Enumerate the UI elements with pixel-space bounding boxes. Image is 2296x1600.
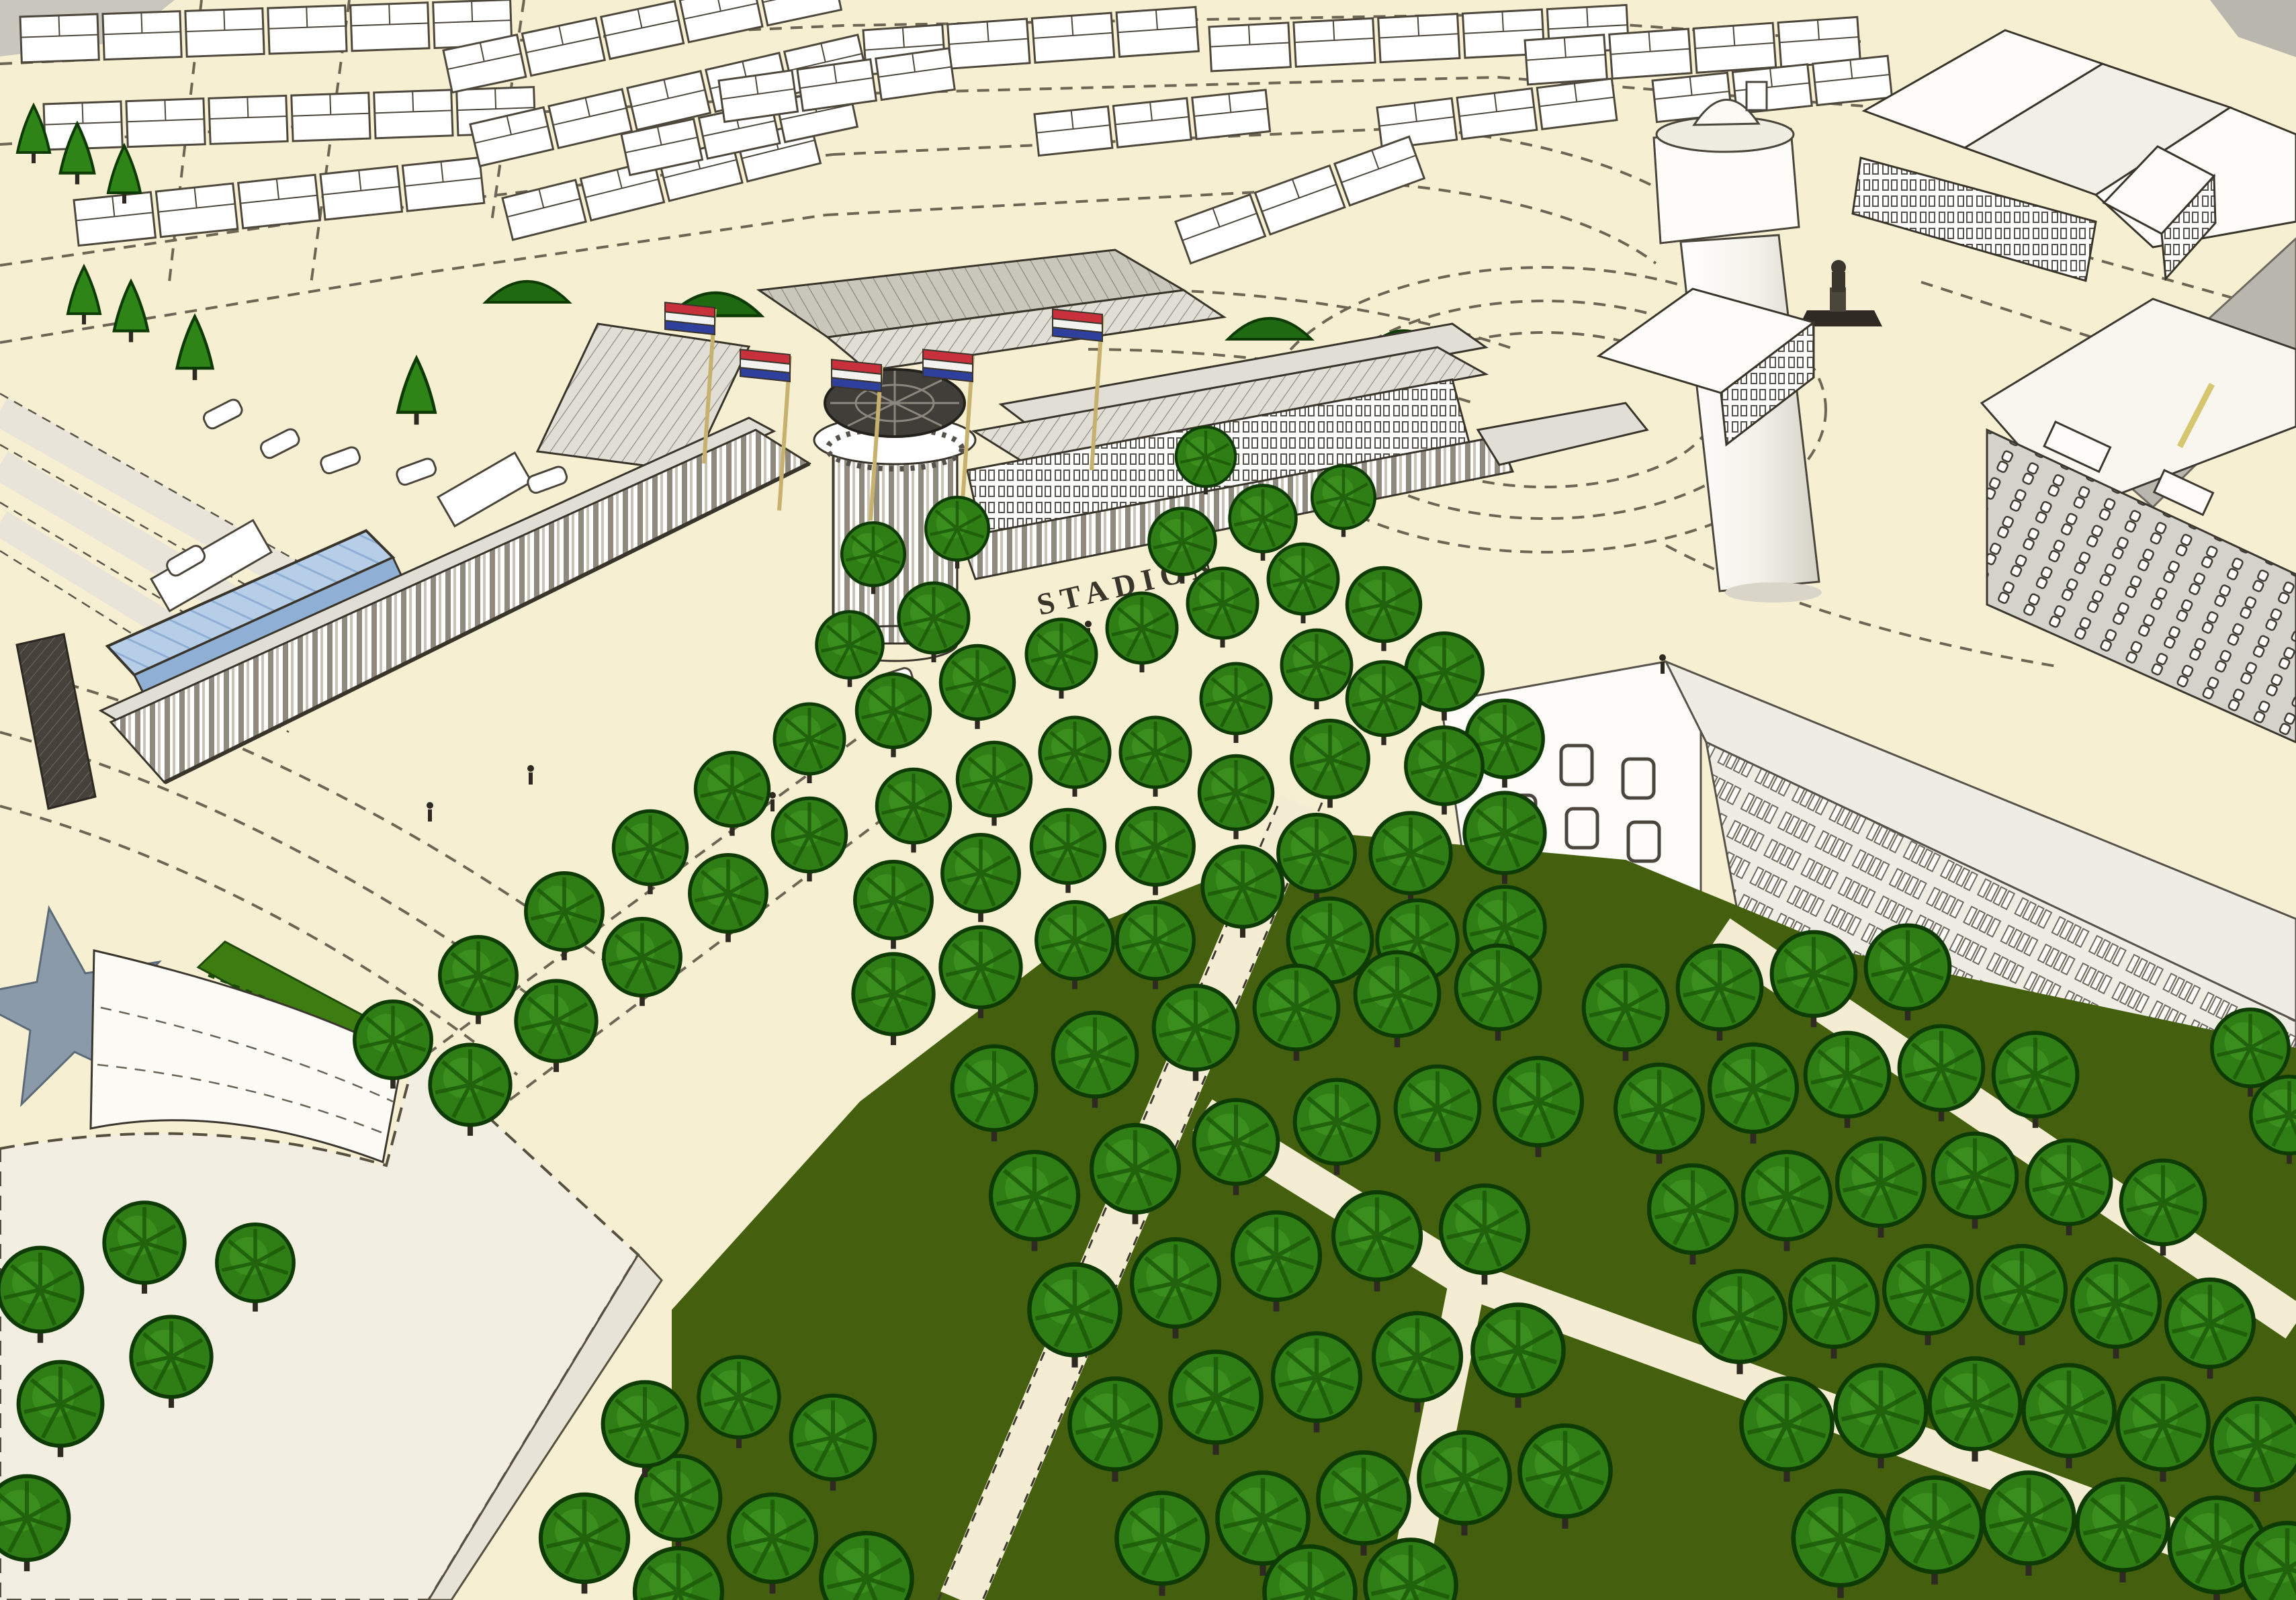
- tower-base-shadow: [1725, 582, 1822, 603]
- city-model-scene: STADION: [0, 0, 2296, 1600]
- render-viewport: STADION: [0, 0, 2296, 1600]
- tree: [821, 1533, 912, 1600]
- statue-figure: [1832, 272, 1845, 292]
- tower-lantern: [1747, 82, 1767, 110]
